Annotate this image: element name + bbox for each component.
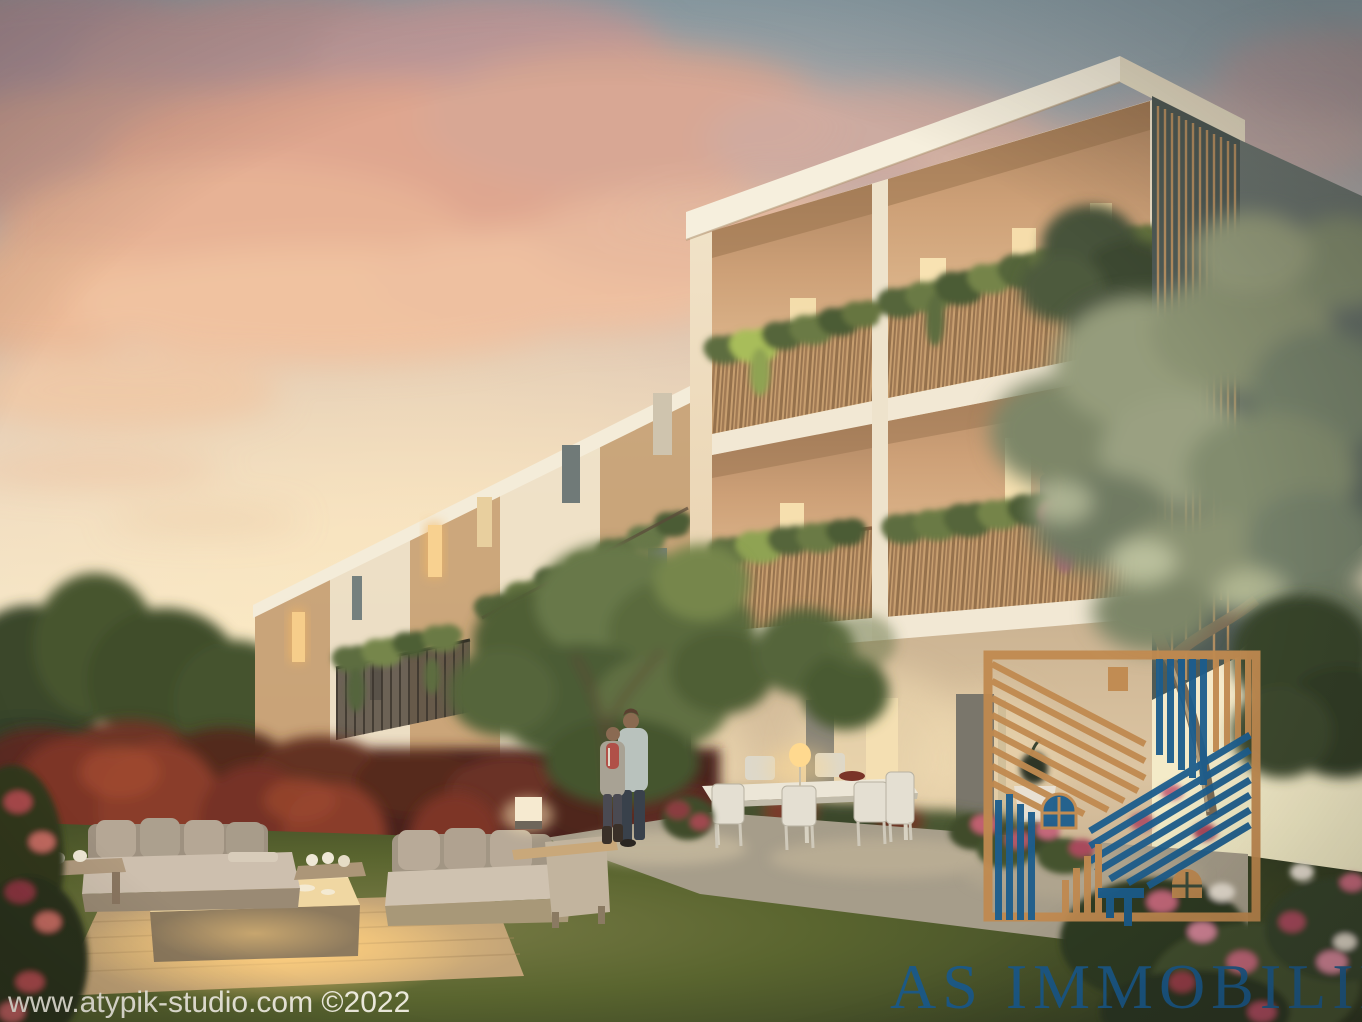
vignette [0,0,1362,1022]
render-canvas: AS IMMOBILIER 7 www.atypik-studio.com ©2… [0,0,1362,1022]
